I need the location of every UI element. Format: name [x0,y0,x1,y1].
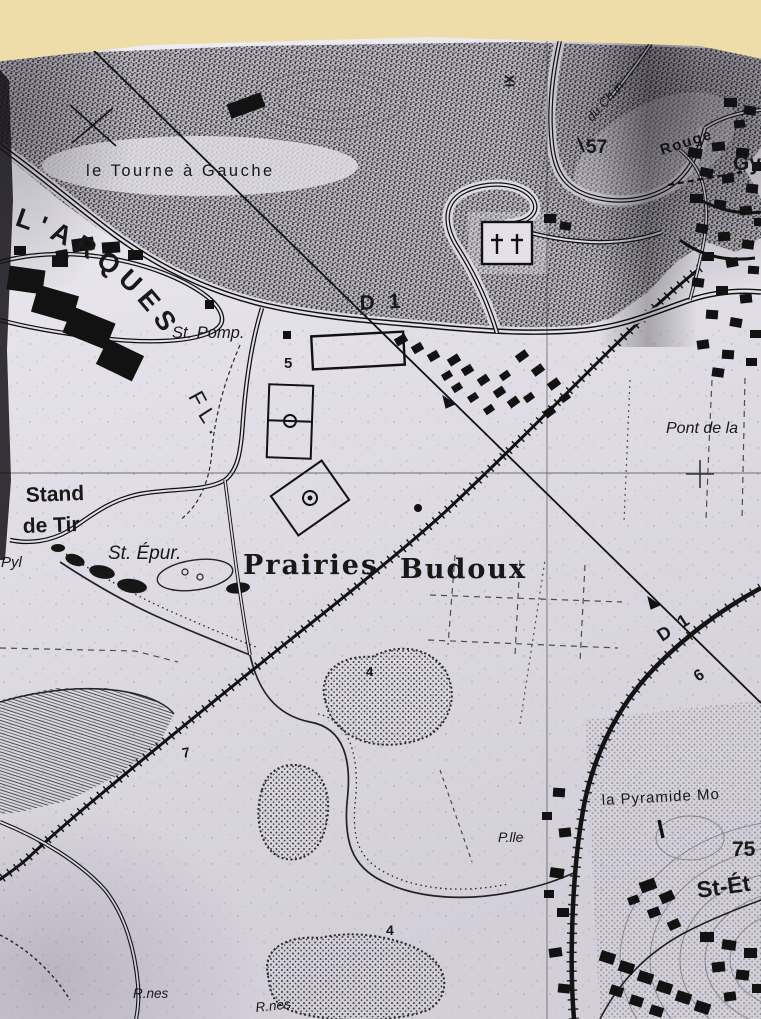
building [744,948,757,958]
building [542,812,552,820]
label-d1-north: D 1 [359,290,405,315]
building [736,969,750,980]
building [559,827,572,837]
building [553,788,566,798]
label-spot-5: 5 [284,355,292,372]
label-de-tir: de Tir [22,513,80,538]
label-spot-75: 75 [732,838,756,861]
map-photo: le Tourne à Gauche L'ARQUES St. Pomp. FL… [0,0,761,1019]
building [700,932,714,942]
building [548,947,562,958]
building [544,890,554,898]
label-passerelle: P.lle [498,829,524,845]
building [712,961,726,972]
building [721,939,736,951]
label-st-pomp: St. Pomp. [172,324,244,342]
label-st-epur: St. Épur. [108,543,181,564]
building [723,991,736,1002]
label-budoux: Budoux [400,554,527,585]
pump-station [205,300,214,309]
building [557,908,569,917]
topographic-map: le Tourne à Gauche L'ARQUES St. Pomp. FL… [0,0,761,1019]
label-stand: Stand [25,482,84,507]
building [549,867,564,879]
label-prairies: Prairies [243,550,378,581]
building [752,984,761,993]
label-pyl: Pyl [1,554,23,571]
building [558,983,571,993]
small-building [283,331,291,339]
label-pont-de-la: Pont de la [666,420,738,437]
label-spot-4a: 4 [366,664,374,679]
label-spot-4b: 4 [386,922,394,938]
